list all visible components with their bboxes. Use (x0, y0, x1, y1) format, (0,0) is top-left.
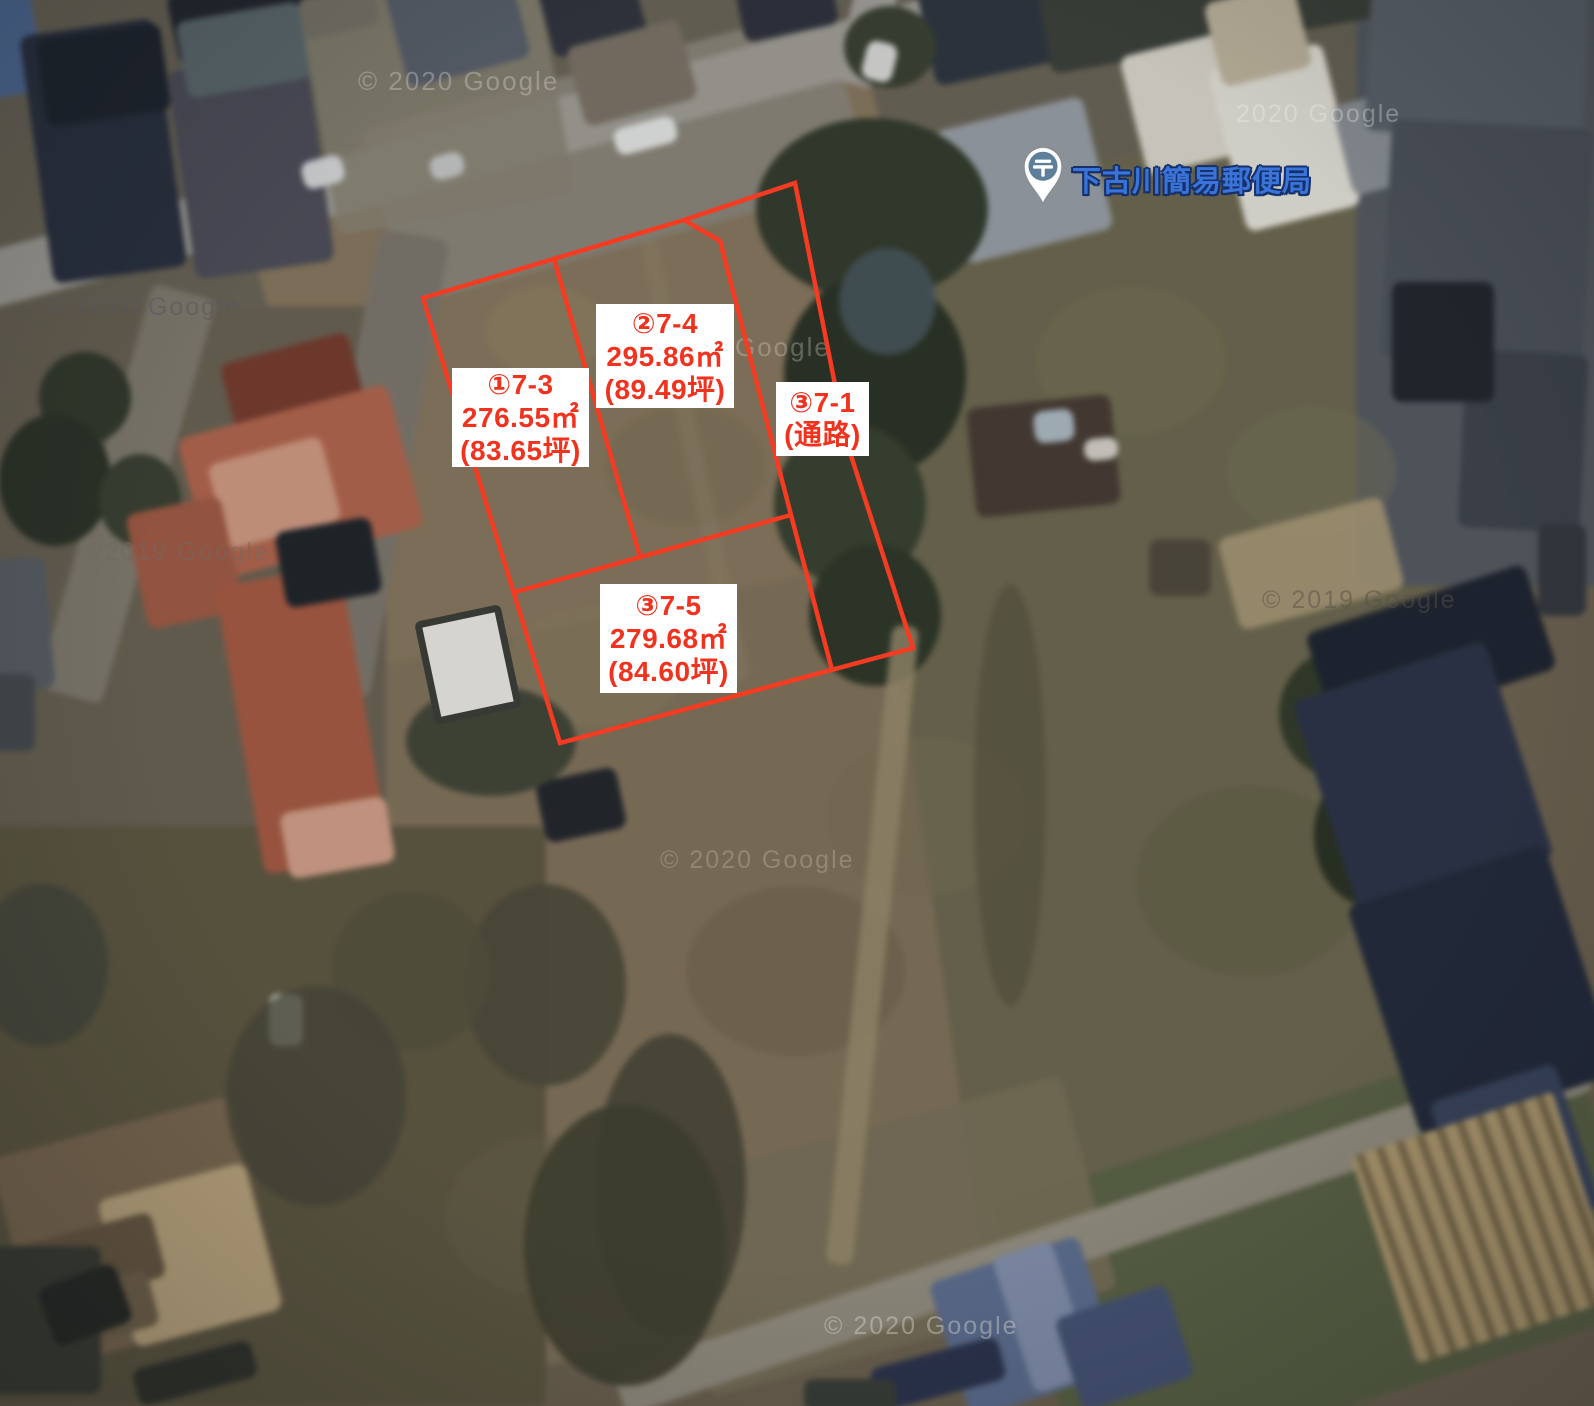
parcel-area-m2: 279.68㎡ (610, 622, 727, 655)
parcel-boundary-lines (0, 0, 1594, 1406)
parcel-label-7-4: ②7-4 295.86㎡ (89.49坪) (596, 304, 734, 408)
parcel-label-7-1: ③7-1 (通路) (776, 382, 869, 456)
parcel-title: ①7-3 (487, 368, 553, 401)
parcel-area-m2: 295.86㎡ (606, 340, 723, 373)
parcel-label-7-5: ③7-5 279.68㎡ (84.60坪) (600, 584, 737, 693)
parcel-area-tsubo: (83.65坪) (460, 434, 581, 467)
parcel-title: ②7-4 (632, 307, 698, 340)
map-viewport[interactable]: © 2020 Google © 2020 Google ©2019 Google… (0, 0, 1594, 1406)
parcel-title: ③7-1 (789, 387, 855, 419)
parcel-area-tsubo: (84.60坪) (608, 655, 729, 688)
parcel-area-tsubo: (89.49坪) (605, 373, 726, 406)
parcel-label-7-3: ①7-3 276.55㎡ (83.65坪) (452, 368, 589, 467)
parcel-title: ③7-5 (635, 589, 701, 622)
parcel-area-m2: 276.55㎡ (462, 401, 579, 434)
divider-7-5-top (515, 515, 791, 592)
poi-label[interactable]: 下古川簡易郵便局 (1072, 158, 1312, 200)
parcel-note: (通路) (784, 419, 861, 451)
post-office-pin-icon[interactable] (1022, 146, 1064, 204)
